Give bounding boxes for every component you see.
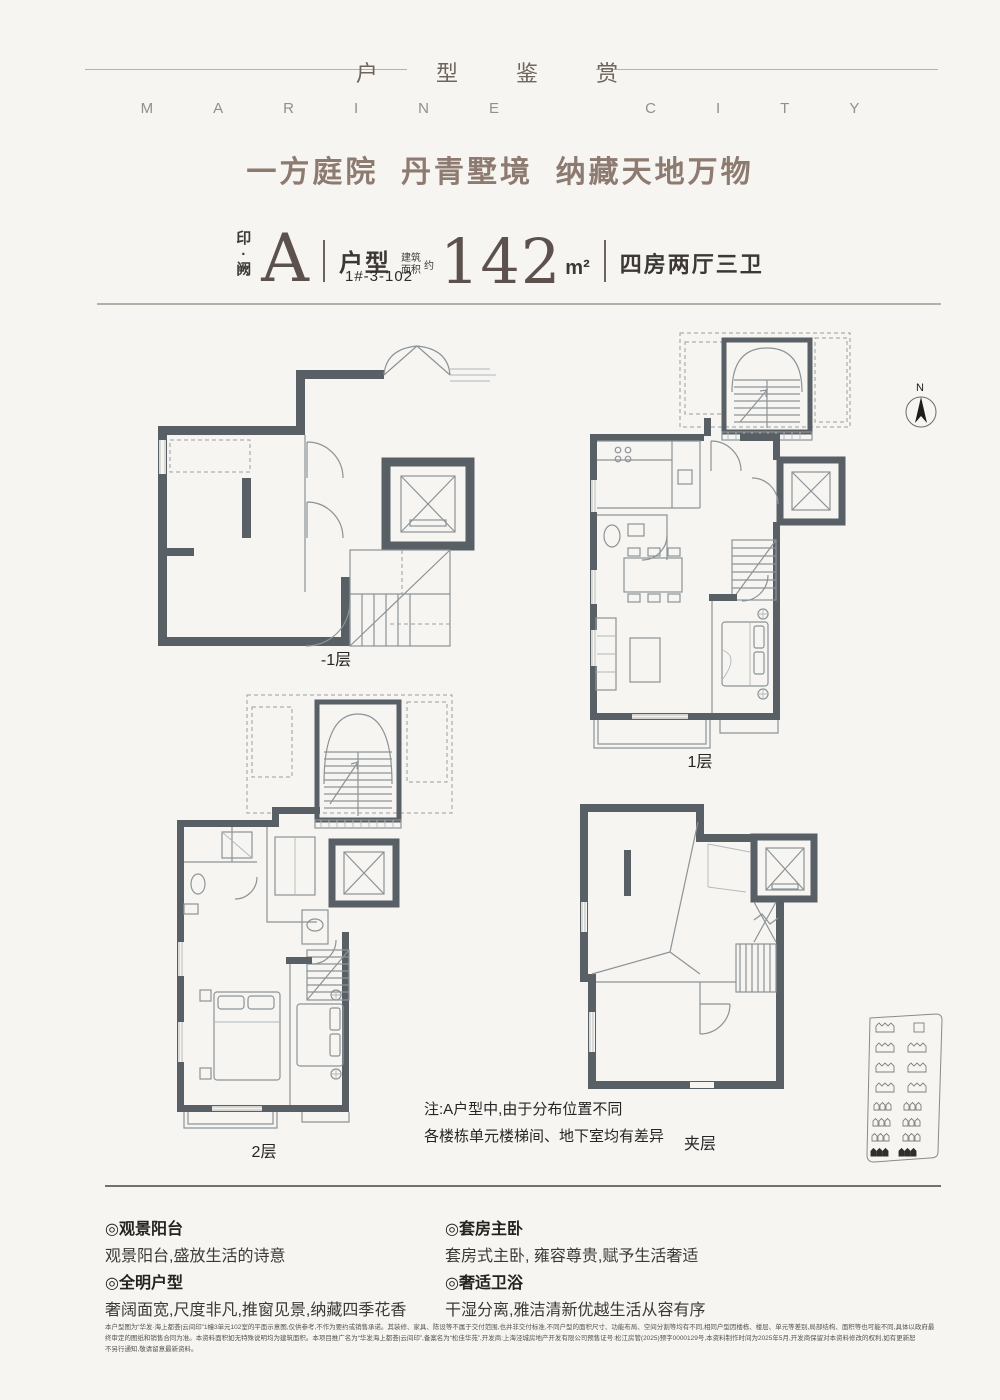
seal-mark: 印 · 阙 xyxy=(236,231,251,278)
room-count: 四房两厅三卫 xyxy=(620,247,764,279)
disclaimer-line1: 本户型图为“华发·海上都荟|云间印”1幢3单元102室的平面示意图,仅供参考,不… xyxy=(105,1322,926,1333)
disclaimer-line3: 不另行通知,敬请留意最新资料。 xyxy=(105,1344,926,1355)
unit-number: 1#-3-102 xyxy=(345,268,413,285)
feature-desc: 奢阔面宽,尺度非凡,推窗见景,纳藏四季花香 xyxy=(105,1297,435,1324)
site-plan-thumbnail xyxy=(858,1012,950,1164)
plan-label-basement: -1层 xyxy=(296,646,376,670)
feature-title: ◎套房主卧 xyxy=(445,1216,865,1243)
page-subtitle-en: MARINE CITY xyxy=(81,100,920,117)
divider-bar xyxy=(323,240,325,282)
plan-note: 注:A户型中,由于分布位置不同 各楼栋单元楼梯间、地下室均有差异 xyxy=(424,1096,664,1150)
feature-desc: 套房式主卧, 雍容尊贵,赋予生活奢适 xyxy=(445,1243,865,1270)
area-prefix-approx: 约 xyxy=(424,257,434,272)
divider-bar xyxy=(604,240,606,282)
brochure-page: 户 型 鉴 赏 MARINE CITY 一方庭院 丹青墅境 纳藏天地万物 印 ·… xyxy=(0,0,1000,1400)
section-divider-features xyxy=(105,1185,941,1187)
area-prefix-line1: 建筑 xyxy=(401,253,421,265)
area-value: 142 xyxy=(440,233,561,290)
feature-title: ◎全明户型 xyxy=(105,1270,435,1297)
floorplan-mezzanine xyxy=(558,792,848,1102)
unit-type-letter: A xyxy=(261,229,309,290)
features-right-column: ◎套房主卧 套房式主卧, 雍容尊贵,赋予生活奢适 ◎奢适卫浴 干湿分离,雅洁清新… xyxy=(445,1216,865,1324)
feature-desc: 干湿分离,雅洁清新优越生活从容有序 xyxy=(445,1297,865,1324)
feature-title: ◎观景阳台 xyxy=(105,1216,435,1243)
compass-icon xyxy=(902,392,940,430)
disclaimer-line2: 终审定的图纸和销售合同为准。本资料面积如无特殊说明均为建筑面积。本项目推广名为“… xyxy=(105,1333,926,1344)
floorplan-second-floor xyxy=(152,692,462,1132)
feature-title: ◎奢适卫浴 xyxy=(445,1270,865,1297)
floorplan-basement xyxy=(150,342,500,654)
slogan: 一方庭院 丹青墅境 纳藏天地万物 xyxy=(0,147,1000,191)
plan-label-mezzanine: 夹层 xyxy=(660,1130,740,1154)
floorplan-first-floor xyxy=(572,330,862,760)
section-divider-top xyxy=(97,303,941,305)
legal-disclaimer: 本户型图为“华发·海上都荟|云间印”1幢3单元102室的平面示意图,仅供参考,不… xyxy=(105,1322,926,1354)
plan-note-line2: 各楼栋单元楼梯间、地下室均有差异 xyxy=(424,1123,664,1150)
page-title: 户 型 鉴 赏 xyxy=(0,56,1000,88)
plan-label-first-floor: 1层 xyxy=(660,748,740,772)
area-unit: m² xyxy=(565,257,589,280)
unit-info-row: 印 · 阙 A 户型 建筑 面积 约 142 m² 四房两厅三卫 xyxy=(0,206,1000,292)
features-left-column: ◎观景阳台 观景阳台,盛放生活的诗意 ◎全明户型 奢阔面宽,尺度非凡,推窗见景,… xyxy=(105,1216,435,1324)
plan-note-line1: 注:A户型中,由于分布位置不同 xyxy=(424,1096,664,1123)
plan-label-second-floor: 2层 xyxy=(224,1138,304,1162)
feature-desc: 观景阳台,盛放生活的诗意 xyxy=(105,1243,435,1270)
